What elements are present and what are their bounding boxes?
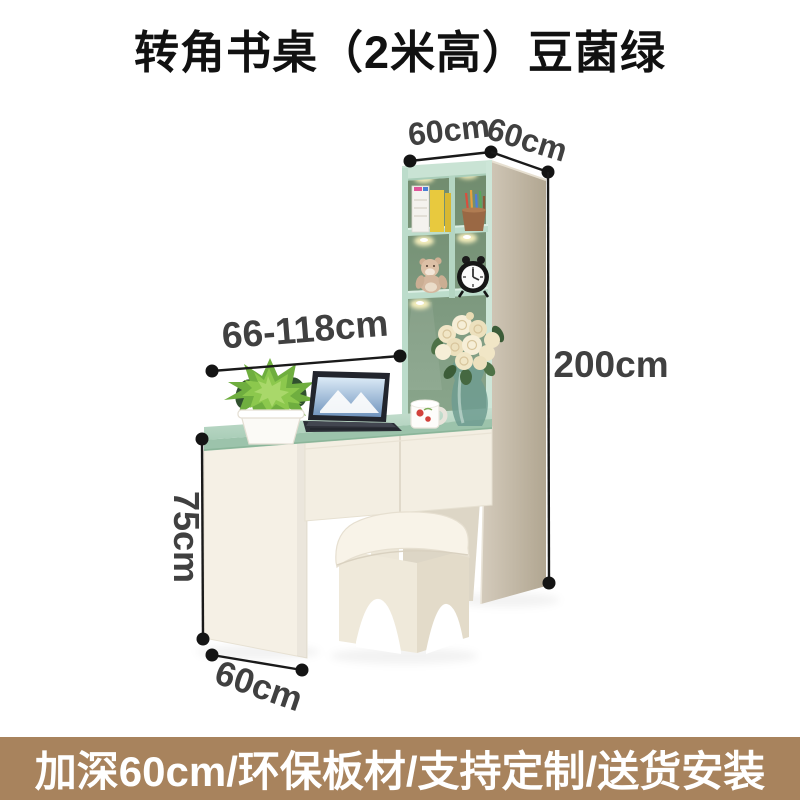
promo-banner-text: 加深60cm/环保板材/支持定制/送货安装 <box>35 738 765 799</box>
dim-desk-width: 66-118cm <box>206 303 407 378</box>
dim-label-desk-width: 66-118cm <box>220 303 389 357</box>
dim-label-total-height: 200cm <box>553 344 668 385</box>
dim-label-desk-height: 75cm <box>166 491 207 583</box>
desk-left-panel <box>204 442 307 658</box>
laptop <box>303 371 402 432</box>
product-spec-image: 转角书桌（2米高）豆菌绿 <box>0 0 800 800</box>
promo-banner: 加深60cm/环保板材/支持定制/送货安装 <box>0 737 800 800</box>
dim-cabinet-depth-left: 60cm <box>404 108 498 168</box>
dim-label-60cm-left: 60cm <box>406 108 491 153</box>
dim-desk-depth: 60cm <box>206 649 309 720</box>
dim-total-height: 200cm <box>543 172 669 590</box>
dim-label-60cm-right: 60cm <box>483 110 572 168</box>
stool <box>336 512 469 654</box>
furniture-scene: 60cm 60cm 66-118cm 200cm 75cm <box>0 0 800 800</box>
dim-desk-height: 75cm <box>166 433 210 646</box>
